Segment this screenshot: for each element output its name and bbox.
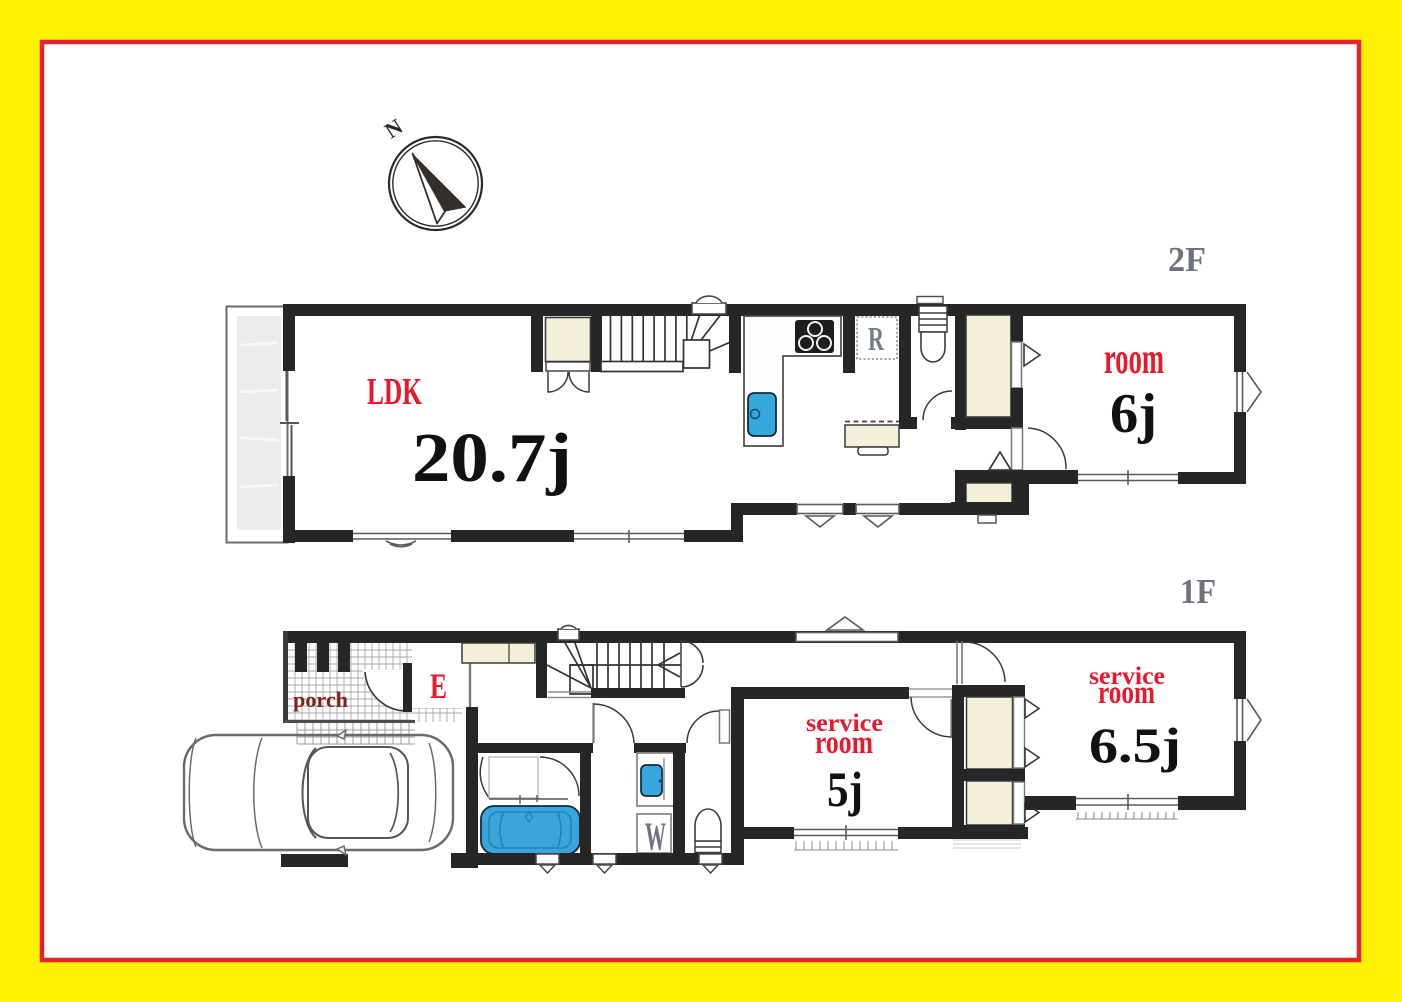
svg-text:6j: 6j [1110, 383, 1157, 445]
svg-text:2F: 2F [1168, 240, 1206, 279]
svg-text:R: R [868, 321, 884, 358]
svg-text:5j: 5j [827, 761, 863, 817]
svg-text:1F: 1F [1180, 572, 1216, 611]
svg-text:20.7j: 20.7j [412, 420, 572, 497]
svg-text:LDK: LDK [367, 371, 422, 413]
svg-text:W: W [645, 814, 666, 859]
svg-text:room: room [1104, 334, 1164, 383]
svg-text:room: room [815, 725, 873, 761]
svg-text:6.5j: 6.5j [1089, 717, 1181, 773]
svg-text:porch: porch [293, 687, 348, 712]
svg-text:room: room [1098, 675, 1155, 711]
svg-text:E: E [430, 666, 447, 706]
